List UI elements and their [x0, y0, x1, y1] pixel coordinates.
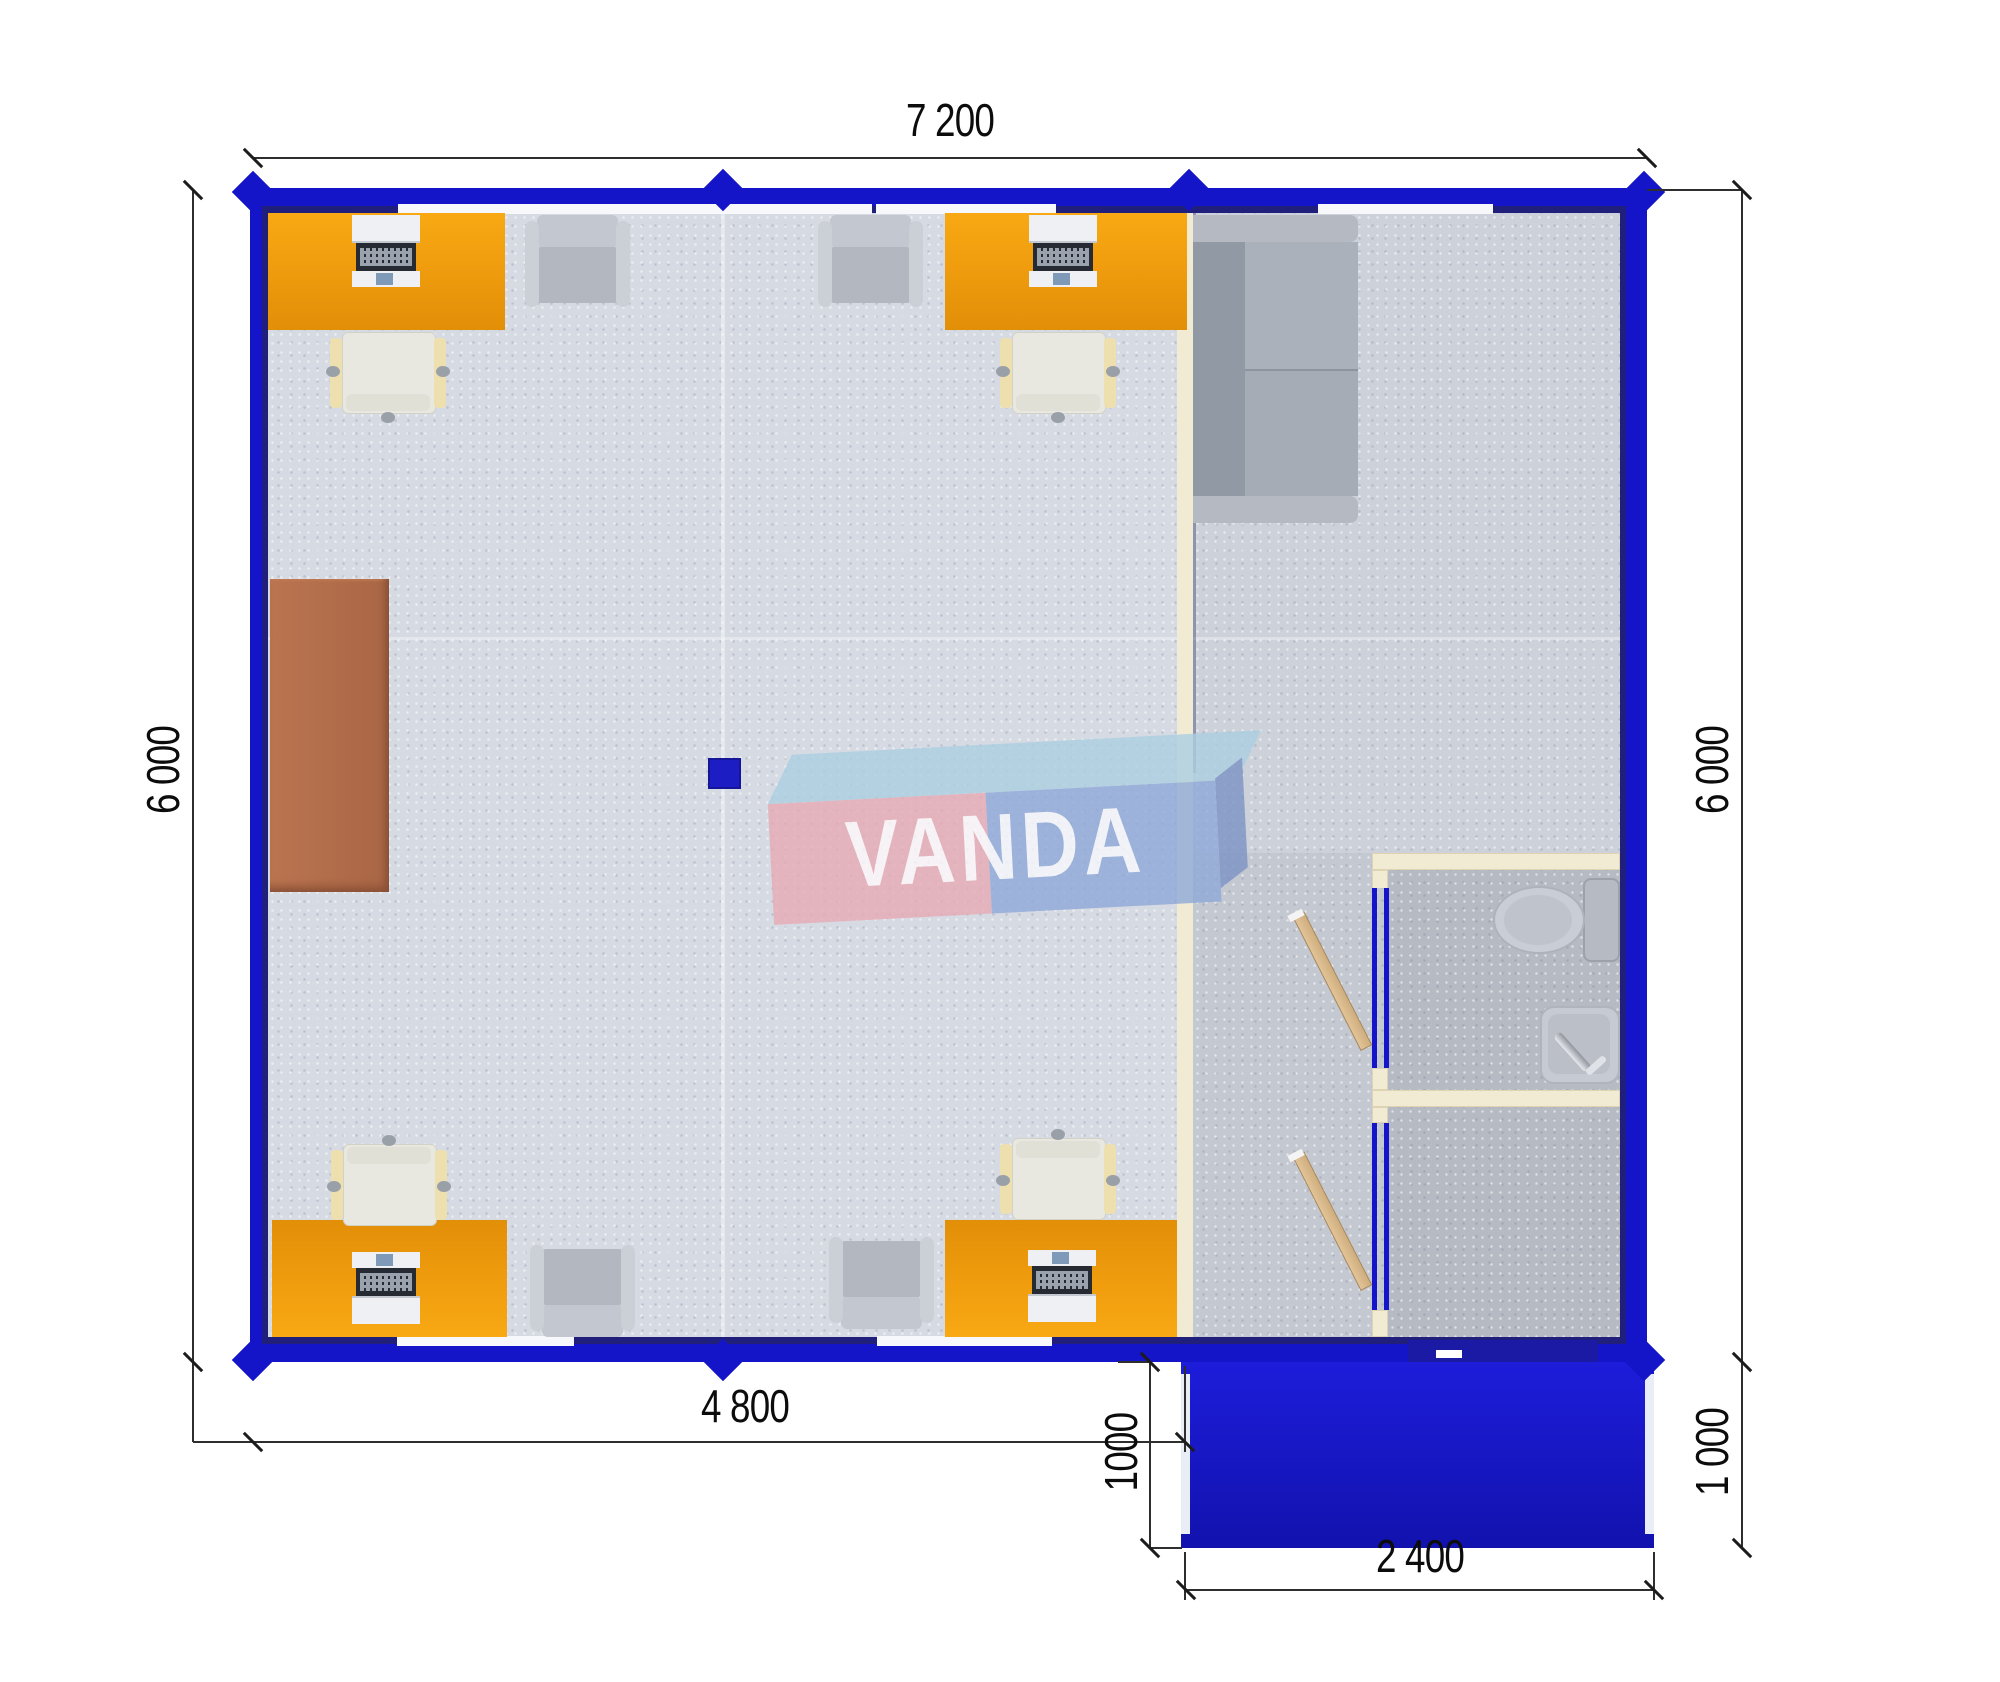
- toilet-tank: [1583, 878, 1620, 962]
- sofa-backrest: [1193, 238, 1245, 500]
- bathroom-door-jamb: [1384, 888, 1389, 1068]
- computer-top-right: [1029, 215, 1097, 287]
- window-bottom-2: [877, 1336, 1052, 1346]
- floor-seam-horizontal: [268, 637, 1620, 640]
- dim-label-right: 6 000: [1685, 726, 1739, 814]
- vestibule-floor: [1388, 1107, 1620, 1337]
- keyboard-icon: [356, 243, 416, 271]
- bathroom-wall-top: [1372, 853, 1620, 870]
- mousepad-icon: [376, 273, 393, 285]
- bathroom-wall-mid: [1372, 1090, 1620, 1107]
- dim-label-porch-bottom: 2 400: [1376, 1529, 1464, 1583]
- vestibule-wall-stub: [1372, 1107, 1388, 1123]
- dim-line-porch-bottom: [1185, 1589, 1655, 1591]
- porch-rail-right: [1645, 1374, 1654, 1534]
- keyboard-icon: [356, 1268, 416, 1296]
- floor-plan: VANDA 7 200 6 000 6 000 1 000 4 800 1000…: [0, 0, 2000, 1682]
- mousepad-icon: [1053, 273, 1070, 285]
- vestibule-door-jamb: [1372, 1123, 1377, 1310]
- armchair-bottom-1: [530, 1240, 635, 1337]
- sofa-cushion: [1245, 242, 1358, 371]
- dim-line-left: [192, 190, 194, 1442]
- vestibule-wall-stub: [1372, 1310, 1388, 1337]
- vestibule-door-jamb: [1384, 1123, 1389, 1310]
- keyboard-icon: [1033, 243, 1093, 271]
- sofa-armrest: [1193, 496, 1358, 523]
- partition-wall: [1177, 213, 1193, 1337]
- cabinet: [270, 579, 389, 892]
- dim-ext-topright: [1647, 189, 1742, 191]
- bathroom-door-jamb: [1372, 888, 1377, 1068]
- dim-label-porch-left: 1000: [1094, 1413, 1148, 1492]
- monitor-icon: [352, 1296, 420, 1324]
- sink: [1540, 1006, 1620, 1084]
- mousepad-icon: [1052, 1252, 1069, 1264]
- bathroom-wall-stub: [1372, 870, 1388, 890]
- dim-line-bottom: [193, 1441, 1186, 1443]
- office-chair-top-right: [1000, 330, 1116, 422]
- toilet: [1484, 870, 1624, 970]
- dim-ext: [1149, 1547, 1182, 1549]
- armchair-bottom-2: [829, 1232, 934, 1329]
- office-chair-top-left: [330, 330, 446, 422]
- dim-line-porch-left: [1149, 1362, 1151, 1548]
- dim-label-bottom: 4 800: [701, 1379, 789, 1433]
- dim-label-top: 7 200: [906, 93, 994, 147]
- porch: [1181, 1362, 1654, 1548]
- sofa: [1193, 215, 1358, 523]
- sofa-armrest: [1193, 215, 1358, 242]
- sofa-cushion: [1245, 371, 1358, 496]
- monitor-icon: [1029, 215, 1097, 243]
- dim-label-porch-right: 1 000: [1685, 1408, 1739, 1496]
- dim-label-left: 6 000: [136, 726, 190, 814]
- corridor-floor: [1193, 853, 1372, 1337]
- computer-bottom-right: [1028, 1250, 1096, 1322]
- mousepad-icon: [376, 1254, 393, 1266]
- computer-bottom-left: [352, 1252, 420, 1324]
- toilet-seat: [1504, 895, 1572, 945]
- window-bottom-1: [397, 1336, 574, 1346]
- dim-ext: [1118, 1361, 1150, 1363]
- monitor-icon: [352, 215, 420, 243]
- computer-top-left: [352, 215, 420, 287]
- monitor-icon: [1028, 1294, 1096, 1322]
- armchair-top-2: [818, 215, 923, 312]
- office-chair-bottom-right: [1000, 1130, 1116, 1222]
- column: [708, 758, 741, 789]
- office-chair-bottom-left: [331, 1136, 447, 1228]
- window-top-3: [1318, 204, 1493, 214]
- keyboard-icon: [1032, 1266, 1092, 1294]
- bathroom-wall-stub: [1372, 1068, 1388, 1090]
- entrance-door-handle: [1436, 1350, 1462, 1358]
- dim-line-top: [253, 157, 1647, 159]
- armchair-top-1: [525, 215, 630, 312]
- dim-line-right: [1741, 190, 1743, 1548]
